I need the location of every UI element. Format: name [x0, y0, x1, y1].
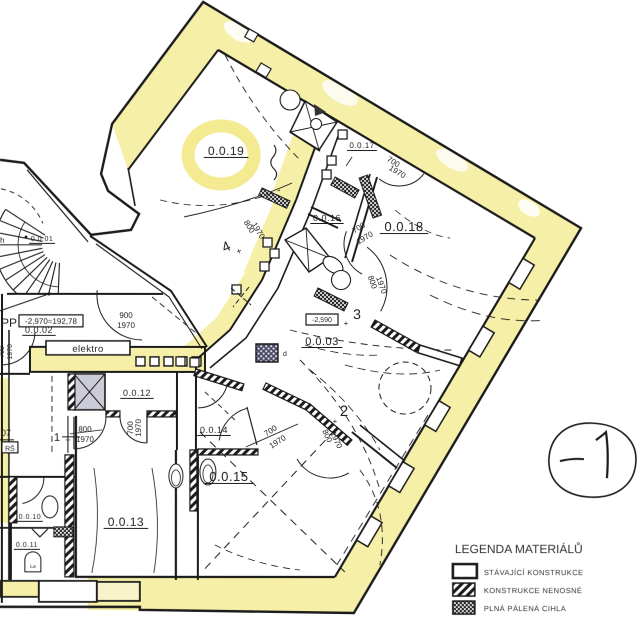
svg-text:1970: 1970: [76, 435, 94, 444]
svg-text:1970: 1970: [117, 321, 135, 330]
svg-text:700: 700: [0, 346, 6, 358]
svg-text:PLNÁ PÁLENÁ CIHLA: PLNÁ PÁLENÁ CIHLA: [484, 604, 566, 613]
svg-text:0.0.10: 0.0.10: [19, 514, 41, 521]
svg-text:0.0.12: 0.0.12: [123, 388, 151, 398]
svg-text:d: d: [283, 350, 287, 358]
svg-text:07: 07: [1, 428, 11, 438]
svg-text:STÁVAJÍCÍ KONSTRUKCE: STÁVAJÍCÍ KONSTRUKCE: [484, 568, 584, 577]
svg-text:1970: 1970: [7, 344, 14, 360]
svg-text:0.0.02: 0.0.02: [25, 325, 53, 335]
svg-text:0.0.11: 0.0.11: [16, 542, 38, 549]
svg-text:+: +: [65, 435, 70, 445]
svg-text:elektro: elektro: [72, 344, 103, 355]
svg-text:2: 2: [340, 403, 348, 420]
svg-text:+: +: [235, 246, 243, 257]
svg-text:RŠ: RŠ: [5, 444, 15, 453]
svg-text:La: La: [30, 564, 36, 570]
svg-text:PP: PP: [1, 316, 17, 330]
svg-text:-2,590: -2,590: [312, 317, 332, 324]
svg-text:900: 900: [119, 311, 133, 320]
svg-text:1970: 1970: [387, 163, 407, 180]
svg-text:0.0.17: 0.0.17: [349, 141, 374, 150]
svg-text:h: h: [0, 236, 4, 245]
svg-text:+: +: [344, 319, 349, 328]
svg-text:3: 3: [353, 306, 361, 322]
svg-text:4: 4: [219, 237, 233, 255]
svg-text:0.0.15: 0.0.15: [209, 469, 248, 484]
svg-text:LEGENDA MATERIÁLŮ: LEGENDA MATERIÁLŮ: [455, 542, 583, 556]
svg-text:+: +: [333, 417, 338, 426]
svg-text:0.0.19: 0.0.19: [208, 144, 244, 158]
svg-text:1: 1: [54, 432, 60, 444]
svg-text:0.0.01: 0.0.01: [31, 236, 53, 243]
svg-text:0.0.13: 0.0.13: [108, 515, 144, 529]
svg-text:1970: 1970: [134, 418, 143, 436]
svg-text:KONSTRUKCE NENOSNÉ: KONSTRUKCE NENOSNÉ: [484, 586, 582, 595]
